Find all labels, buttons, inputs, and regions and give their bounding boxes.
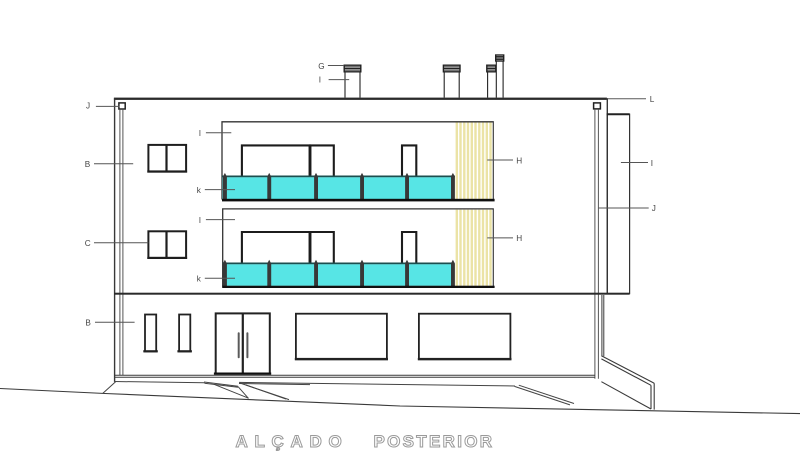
svg-text:H: H xyxy=(516,234,522,243)
svg-text:B: B xyxy=(85,319,91,328)
svg-text:H: H xyxy=(516,156,522,165)
svg-text:l: l xyxy=(199,129,201,138)
svg-text:POSTERIOR: POSTERIOR xyxy=(374,432,495,451)
svg-text:l: l xyxy=(199,216,201,225)
svg-text:B: B xyxy=(85,160,91,169)
svg-text:I: I xyxy=(319,76,321,85)
svg-text:J: J xyxy=(652,204,656,213)
svg-text:J: J xyxy=(86,102,90,111)
svg-text:C: C xyxy=(85,239,91,248)
svg-text:ALÇADO: ALÇADO xyxy=(236,432,349,451)
svg-text:G: G xyxy=(318,62,324,71)
svg-text:L: L xyxy=(650,95,655,104)
svg-text:I: I xyxy=(651,159,653,168)
